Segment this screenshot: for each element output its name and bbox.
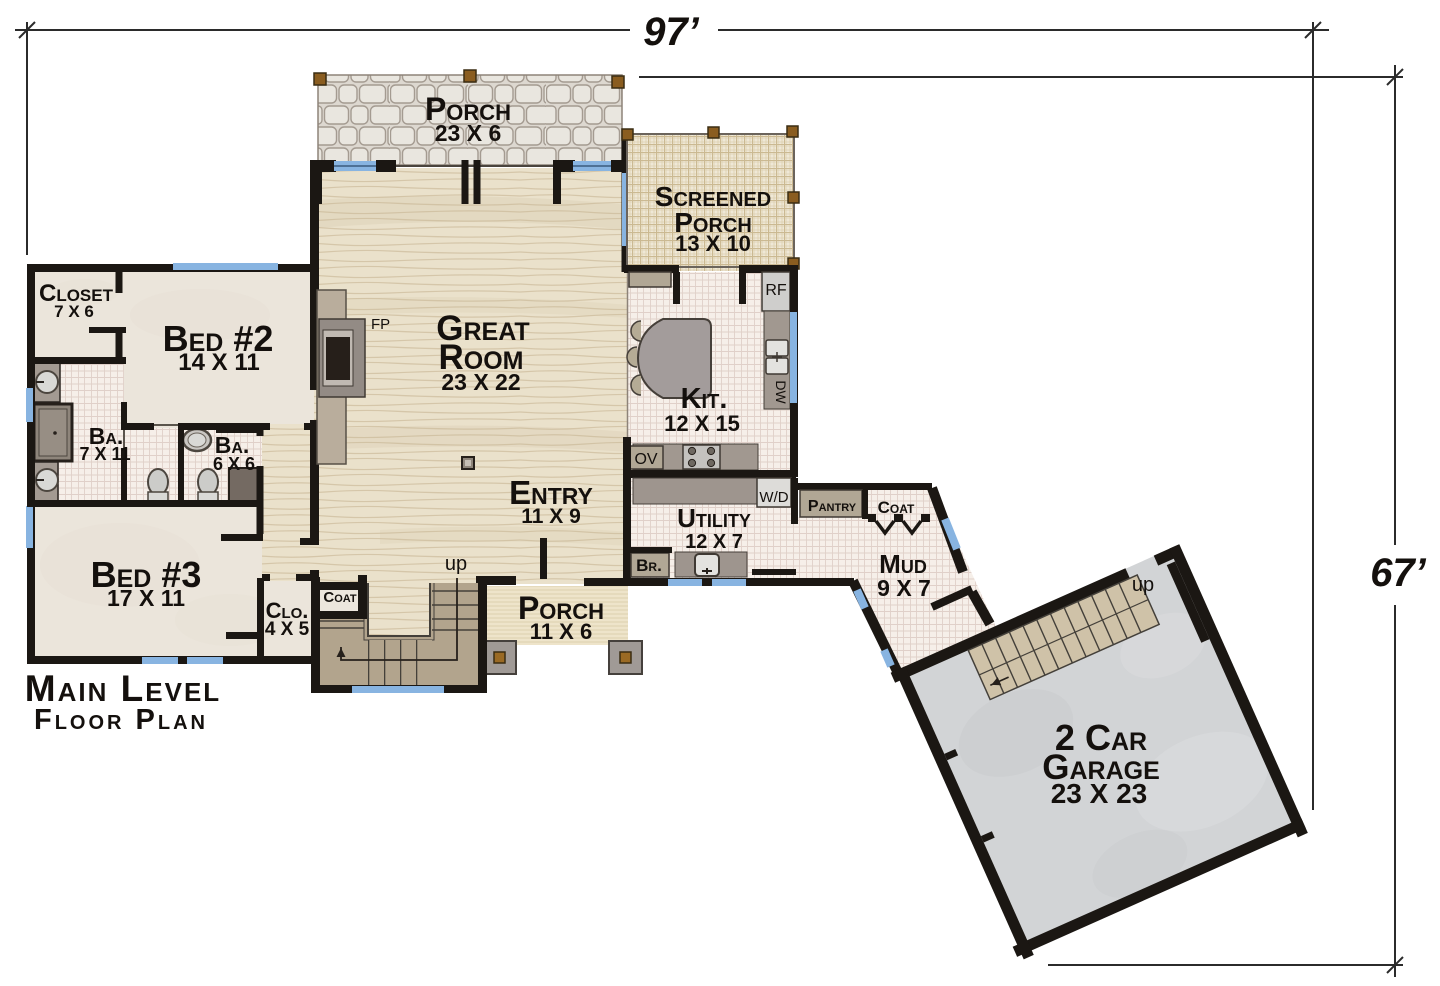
svg-text:7 X 11: 7 X 11 [79,444,130,464]
svg-text:up: up [445,553,467,575]
svg-text:Coat: Coat [878,498,915,517]
svg-text:11 X 9: 11 X 9 [521,505,581,528]
svg-text:7 X 6: 7 X 6 [54,302,94,321]
svg-text:97’: 97’ [643,10,699,54]
svg-text:up: up [1132,574,1154,596]
svg-text:17 X 11: 17 X 11 [107,585,185,611]
svg-text:12 X 15: 12 X 15 [664,411,740,436]
svg-text:RF: RF [765,282,787,299]
svg-text:FP: FP [371,316,390,333]
svg-text:W/D: W/D [759,489,788,506]
svg-text:Pantry: Pantry [808,498,857,515]
svg-text:Utility: Utility [677,503,751,533]
svg-text:23 X 22: 23 X 22 [441,369,520,395]
svg-text:11 X 6: 11 X 6 [530,619,592,644]
svg-text:Coat: Coat [323,589,357,606]
svg-text:DW: DW [773,380,789,404]
svg-text:23 X 23: 23 X 23 [1051,778,1148,809]
svg-text:Br.: Br. [636,556,662,575]
svg-text:4 X 5: 4 X 5 [265,619,310,640]
svg-text:6 X 6: 6 X 6 [213,454,255,474]
svg-text:14 X 11: 14 X 11 [178,349,259,376]
svg-text:23 X 6: 23 X 6 [435,120,502,146]
svg-text:9 X 7: 9 X 7 [877,575,931,601]
svg-text:13 X 10: 13 X 10 [675,231,751,256]
svg-text:OV: OV [634,451,657,468]
svg-text:67’: 67’ [1370,551,1426,595]
svg-text:12 X 7: 12 X 7 [685,531,743,553]
svg-text:Floor Plan: Floor Plan [34,704,208,736]
svg-text:Main Level: Main Level [25,668,221,709]
